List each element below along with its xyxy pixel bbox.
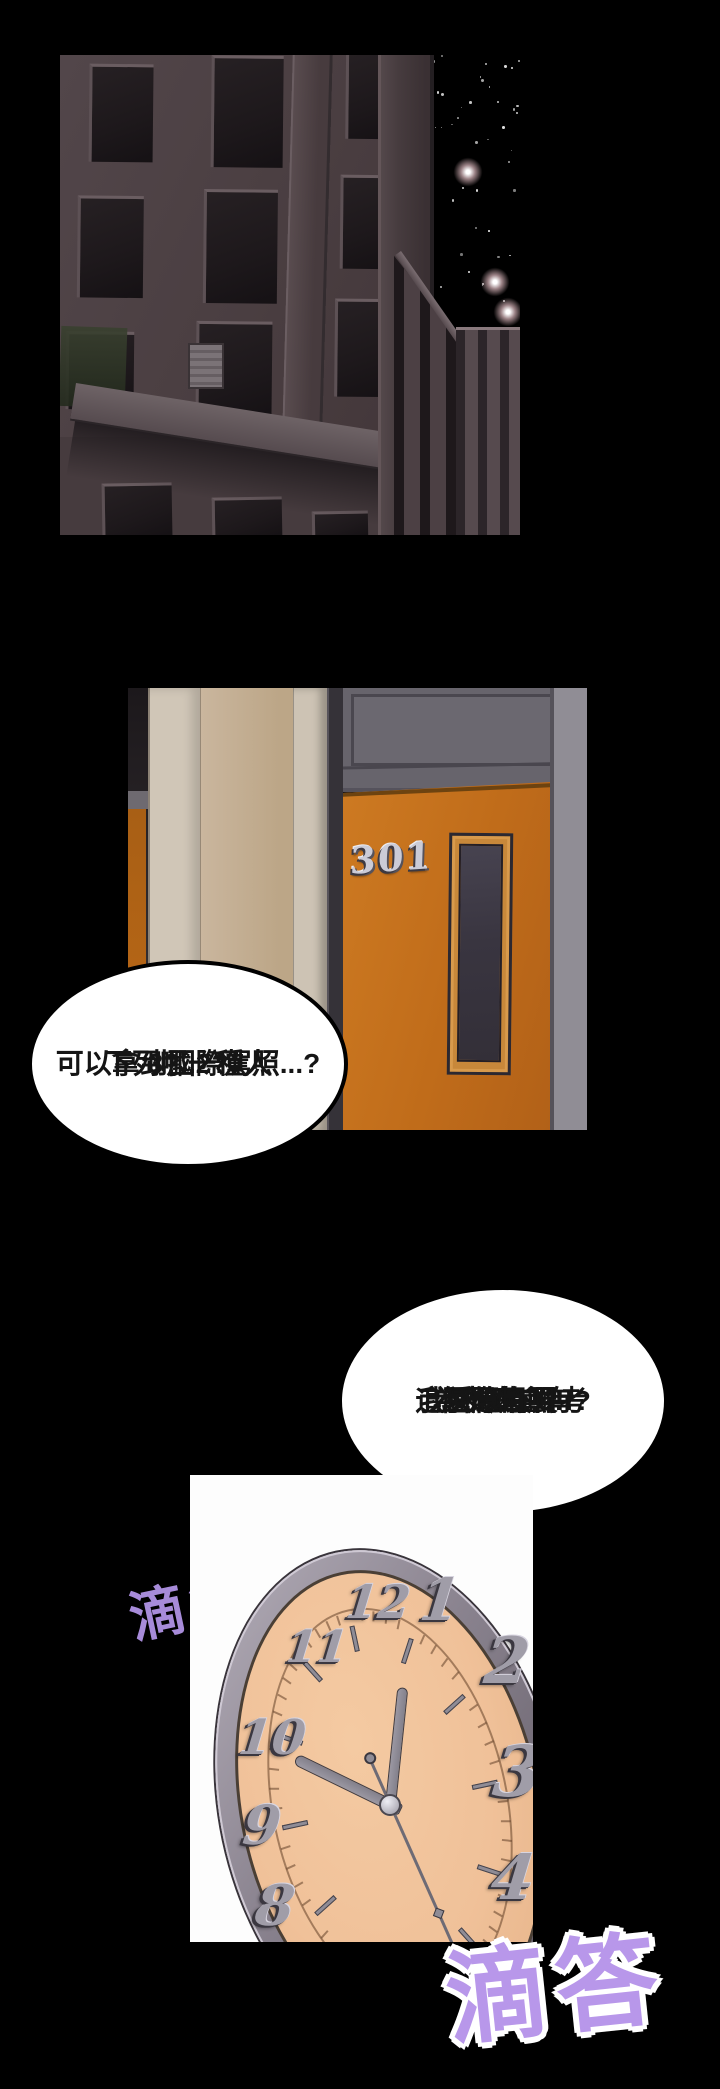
far-building-windows bbox=[456, 330, 520, 535]
star bbox=[435, 127, 436, 128]
star bbox=[489, 86, 491, 88]
clock-numeral: 3 bbox=[490, 1737, 533, 1807]
star bbox=[462, 187, 464, 189]
clock-numeral: 2 bbox=[481, 1630, 532, 1694]
building-window bbox=[77, 195, 144, 298]
star bbox=[441, 93, 444, 96]
star bbox=[511, 67, 513, 69]
bubble-text-line: 3?..2? bbox=[148, 1047, 229, 1082]
clock-minute-tick bbox=[500, 1820, 510, 1822]
building-window bbox=[203, 189, 278, 304]
star bbox=[480, 76, 482, 78]
star bbox=[475, 227, 478, 230]
bright-star bbox=[453, 157, 483, 187]
clock-numeral: 4 bbox=[488, 1847, 533, 1909]
bright-star bbox=[493, 297, 520, 327]
star bbox=[504, 65, 506, 67]
star bbox=[457, 117, 459, 119]
star bbox=[441, 127, 442, 128]
star bbox=[508, 161, 510, 163]
star bbox=[513, 108, 515, 110]
door-window-frame bbox=[447, 833, 514, 1076]
star bbox=[511, 150, 512, 151]
building-window bbox=[211, 55, 284, 168]
clock-center-hub bbox=[379, 1794, 401, 1816]
panel-night-building bbox=[60, 55, 520, 535]
star bbox=[485, 63, 487, 65]
bubble-text-line: 這種題目啊!!? bbox=[415, 1384, 591, 1418]
air-conditioner-unit bbox=[188, 343, 224, 389]
star bbox=[488, 230, 490, 232]
star bbox=[513, 189, 515, 191]
clock-minute-tick bbox=[270, 1788, 280, 1790]
star bbox=[451, 124, 453, 126]
sfx-ticktock-large: 滴答 bbox=[438, 1897, 672, 2066]
star bbox=[468, 271, 470, 273]
star bbox=[497, 101, 499, 103]
star bbox=[497, 256, 500, 259]
star bbox=[509, 255, 510, 256]
star bbox=[452, 199, 455, 202]
star bbox=[460, 253, 463, 256]
star bbox=[516, 105, 519, 108]
clock-numeral: 8 bbox=[253, 1878, 298, 1934]
door-window-glass bbox=[457, 844, 503, 1062]
far-building-facade bbox=[456, 327, 520, 535]
star bbox=[487, 139, 489, 141]
transom-recess bbox=[351, 694, 561, 766]
star bbox=[476, 189, 479, 192]
hall-left-frame bbox=[128, 791, 148, 809]
building-window bbox=[89, 64, 154, 163]
clock-numeral: 12 bbox=[344, 1579, 413, 1625]
star bbox=[441, 55, 443, 57]
panel-clock: 12 1 2 3 4 8 9 10 11 bbox=[190, 1475, 533, 1942]
star bbox=[481, 79, 484, 82]
star bbox=[437, 91, 439, 93]
star bbox=[502, 126, 505, 129]
star bbox=[475, 141, 478, 144]
bright-star bbox=[480, 267, 510, 297]
door-jamb bbox=[550, 688, 587, 1130]
room-number-plate: 301 bbox=[349, 833, 430, 883]
clock-numeral: 10 bbox=[236, 1714, 308, 1762]
star bbox=[461, 107, 462, 108]
clock-numeral: 11 bbox=[284, 1626, 350, 1670]
speech-bubble-question: 下列哪一種人 可以拿到國際駕照...? 3?..2? bbox=[28, 960, 348, 1168]
star bbox=[440, 286, 442, 288]
star bbox=[469, 101, 472, 104]
left-building-facade bbox=[60, 55, 392, 535]
star bbox=[518, 60, 520, 62]
star bbox=[516, 112, 518, 114]
clock-numeral: 9 bbox=[240, 1798, 283, 1852]
comic-page: 301 下列哪一種人 可以拿到國際駕照...? 3?..2? 媽的.. 我又沒有… bbox=[0, 0, 720, 2089]
clock-numeral: 1 bbox=[417, 1571, 463, 1629]
orange-door bbox=[343, 782, 550, 1130]
